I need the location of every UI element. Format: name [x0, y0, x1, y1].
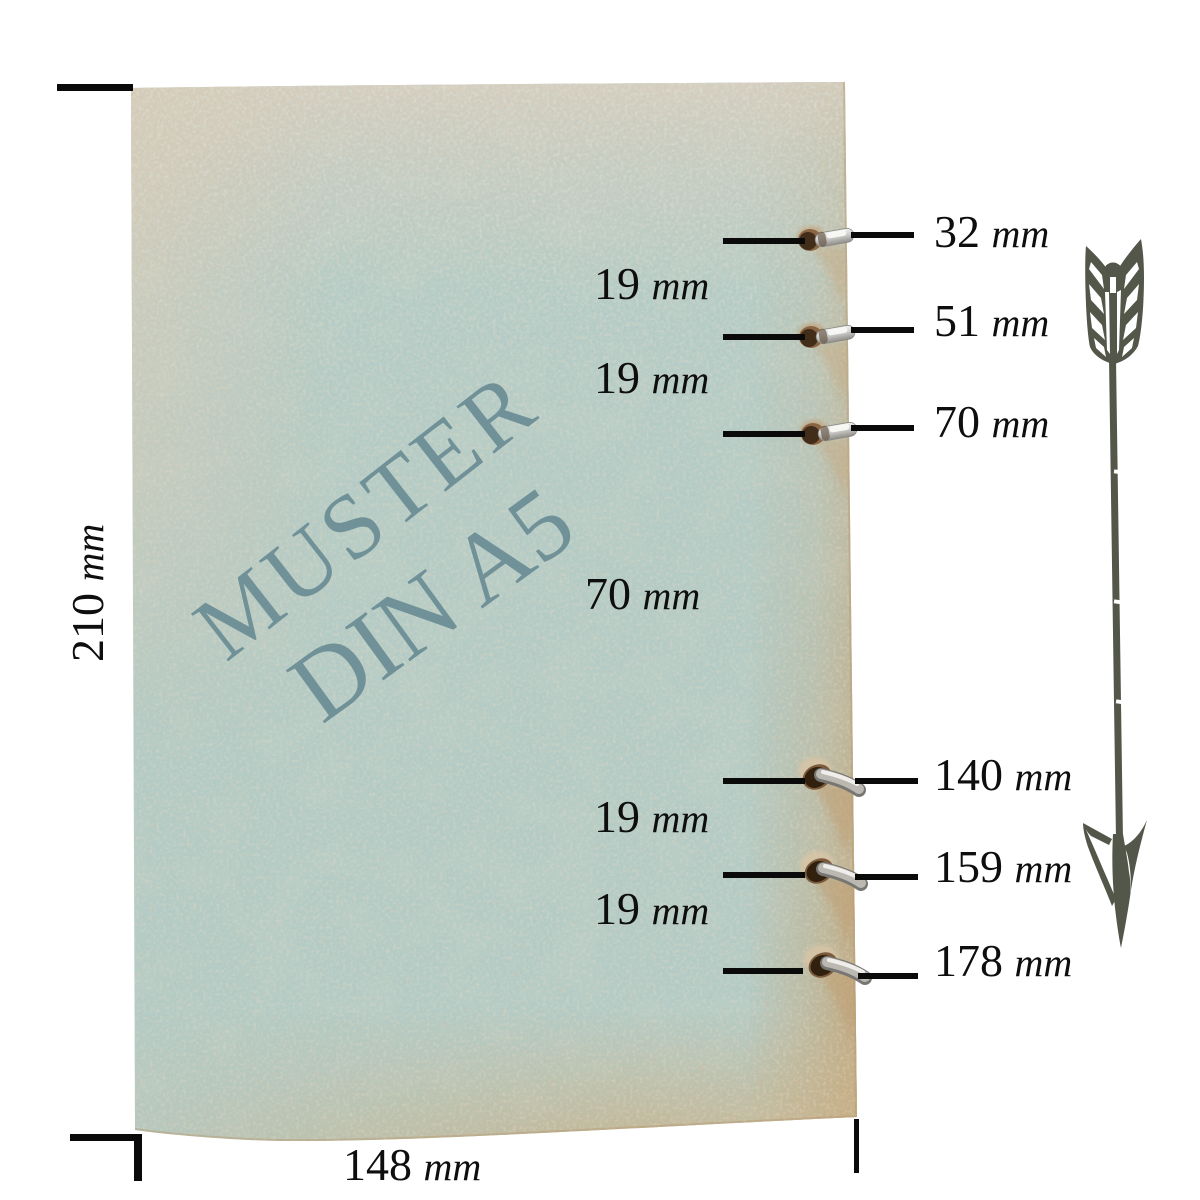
- svg-text:19 mm: 19 mm: [594, 258, 709, 309]
- svg-text:178 mm: 178 mm: [934, 935, 1072, 986]
- svg-text:19 mm: 19 mm: [594, 352, 709, 403]
- svg-text:148 mm: 148 mm: [343, 1139, 481, 1190]
- svg-text:159 mm: 159 mm: [934, 841, 1072, 892]
- svg-text:70 mm: 70 mm: [585, 568, 700, 619]
- svg-text:32 mm: 32 mm: [934, 206, 1049, 257]
- svg-text:210 mm: 210 mm: [62, 524, 113, 662]
- svg-text:19 mm: 19 mm: [594, 791, 709, 842]
- svg-text:19 mm: 19 mm: [594, 883, 709, 934]
- svg-text:140 mm: 140 mm: [934, 749, 1072, 800]
- svg-text:51 mm: 51 mm: [934, 295, 1049, 346]
- svg-text:70 mm: 70 mm: [934, 396, 1049, 447]
